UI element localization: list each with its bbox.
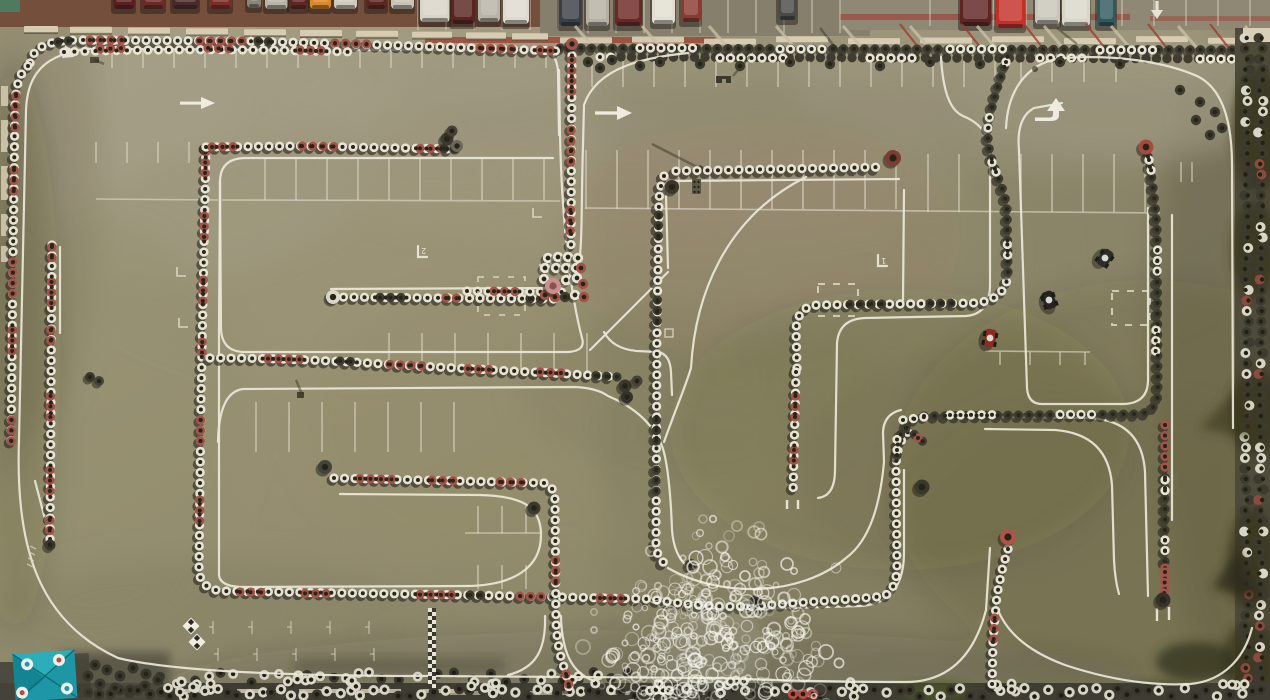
svg-text:2: 2 xyxy=(421,246,426,255)
svg-text:1: 1 xyxy=(881,256,886,265)
